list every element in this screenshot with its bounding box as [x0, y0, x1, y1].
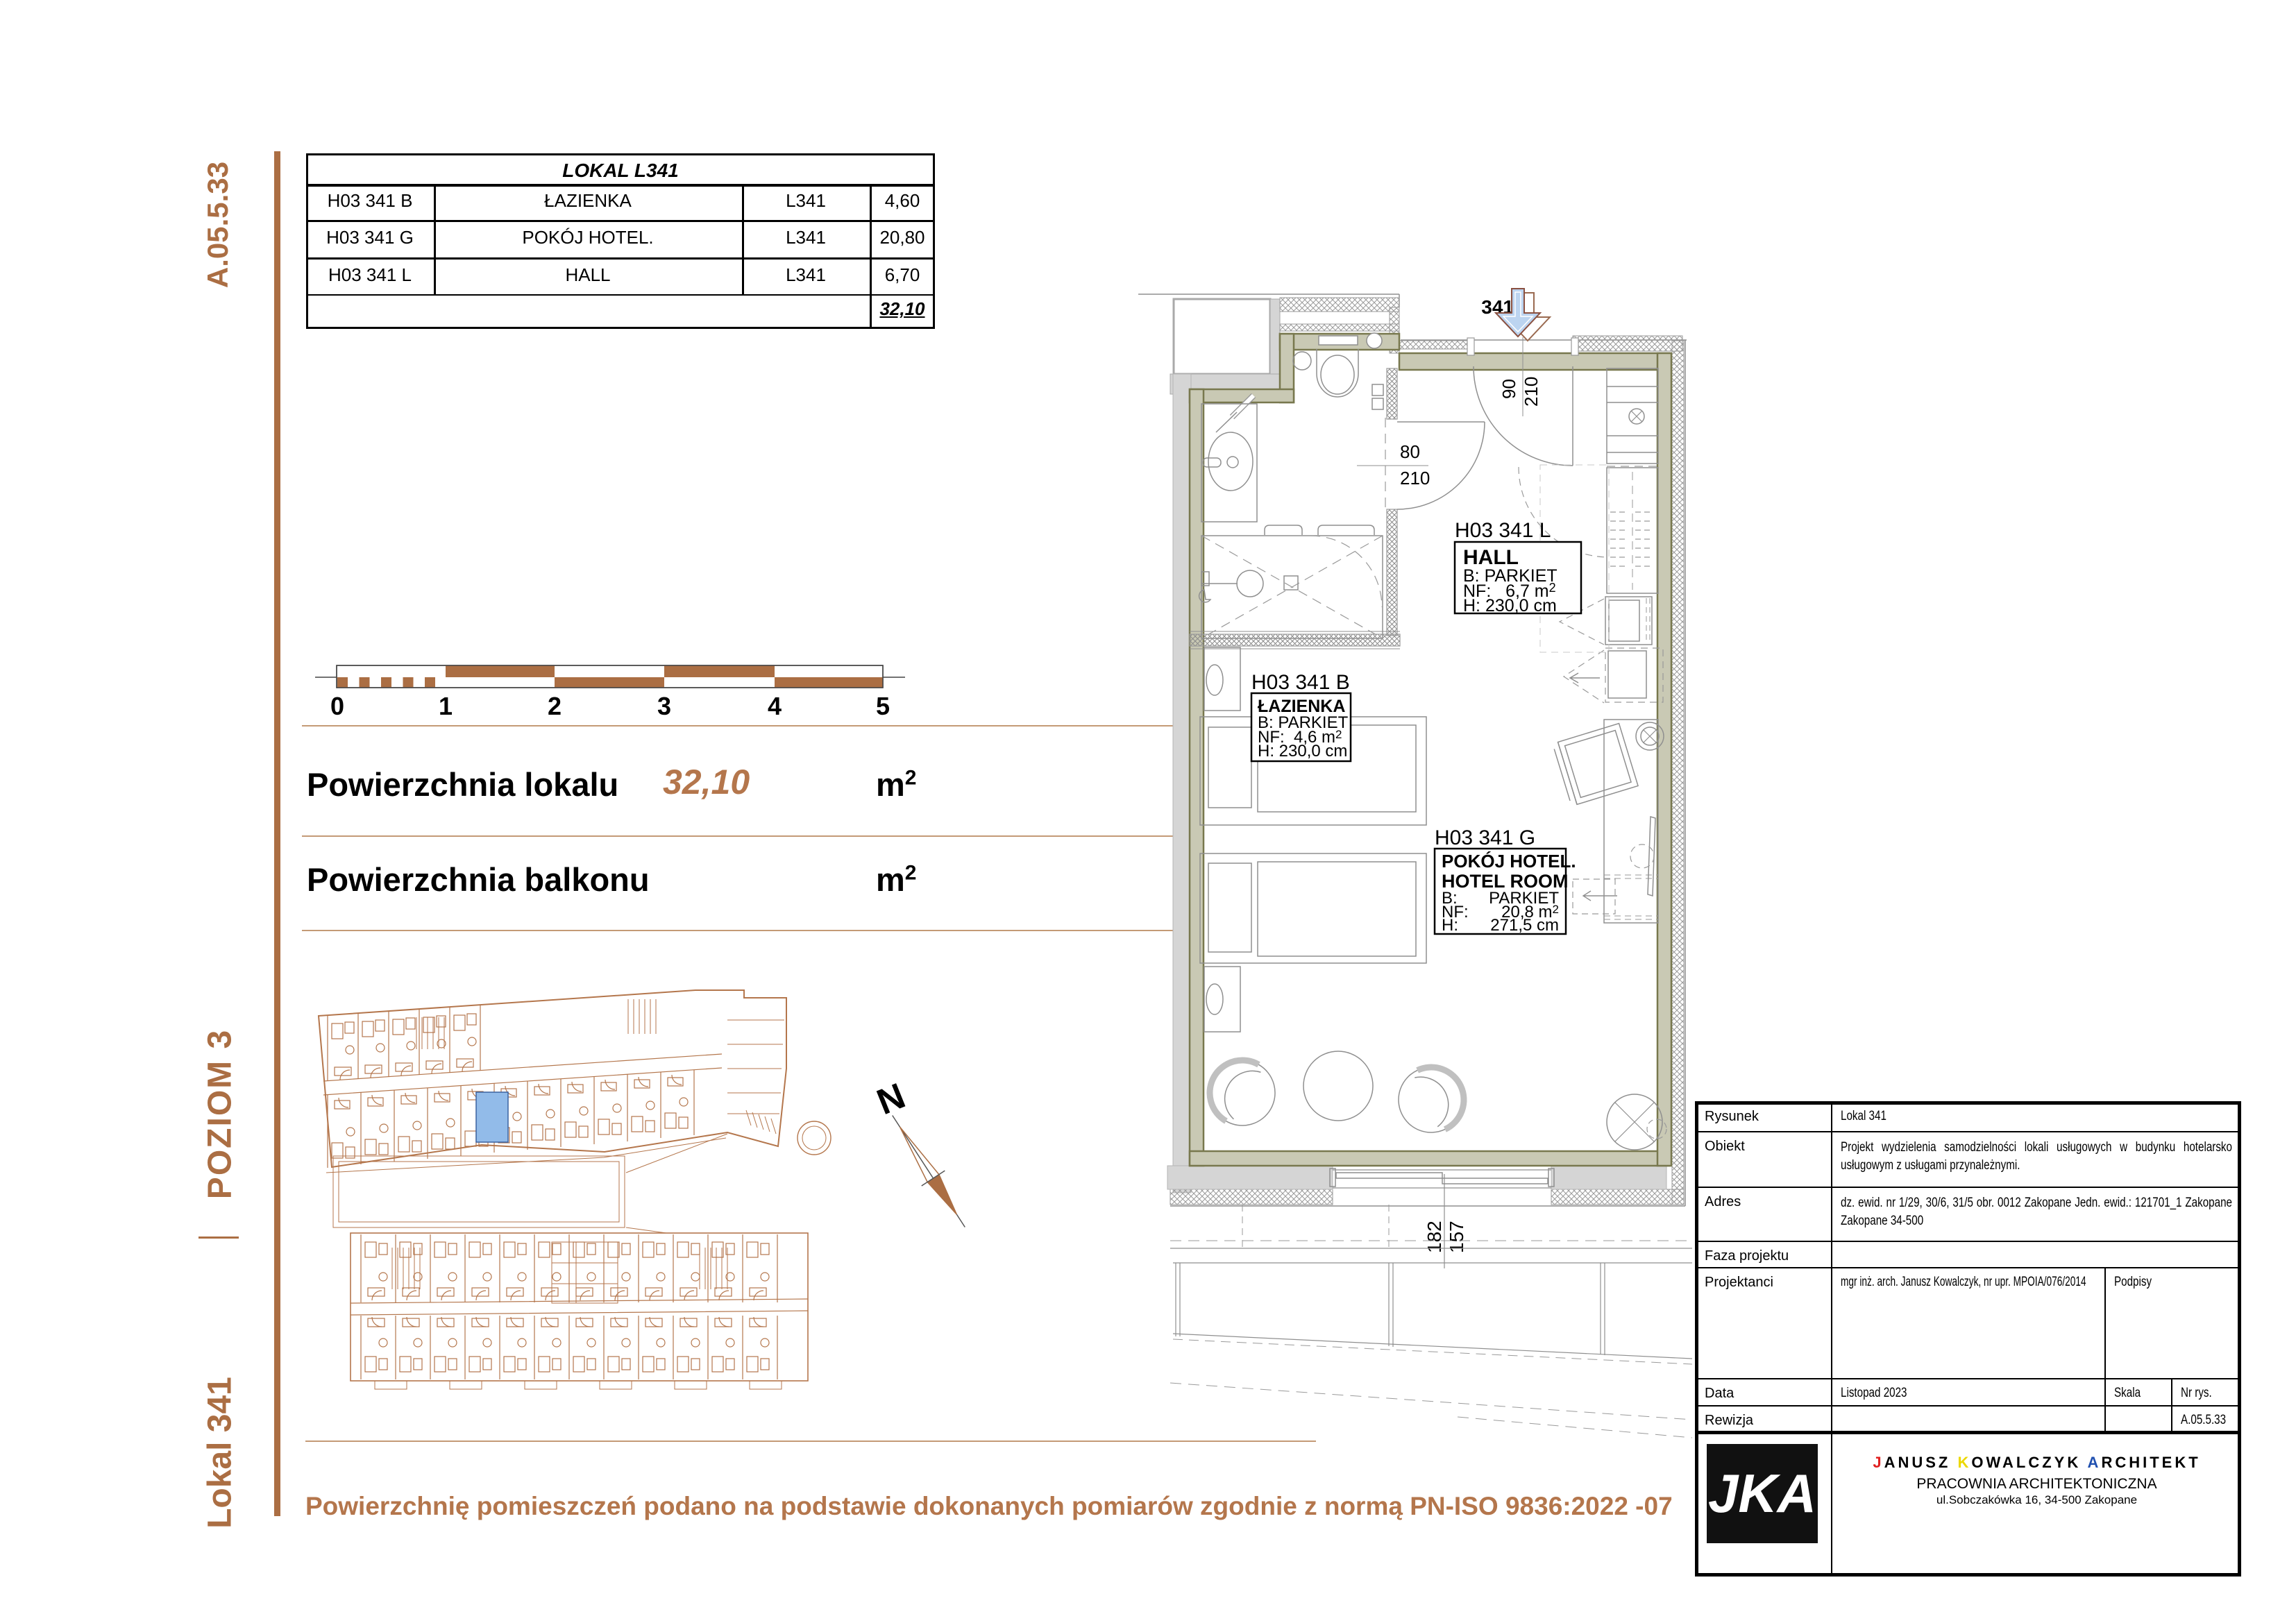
svg-text:4: 4 — [768, 692, 782, 720]
svg-text:H: 230,0 cm: H: 230,0 cm — [1463, 596, 1557, 615]
svg-text:90: 90 — [1499, 379, 1519, 399]
svg-text:1: 1 — [439, 692, 453, 720]
svg-text:210: 210 — [1400, 468, 1430, 488]
svg-text:5: 5 — [876, 692, 890, 720]
svg-text:271,5 cm: 271,5 cm — [1490, 916, 1559, 935]
svg-text:3: 3 — [657, 692, 671, 720]
svg-text:H03 341 L: H03 341 L — [1455, 519, 1551, 542]
svg-text:0: 0 — [330, 692, 344, 720]
svg-text:2: 2 — [548, 692, 562, 720]
svg-text:H03 341 G: H03 341 G — [1435, 826, 1535, 849]
svg-text:H03 341 B: H03 341 B — [1251, 671, 1350, 694]
svg-text:H:: H: — [1442, 916, 1458, 935]
svg-text:N: N — [872, 1076, 911, 1123]
svg-text:H: 230,0 cm: H: 230,0 cm — [1258, 742, 1347, 760]
svg-text:210: 210 — [1521, 377, 1542, 407]
svg-text:POKÓJ HOTEL.: POKÓJ HOTEL. — [1442, 851, 1576, 872]
svg-text:80: 80 — [1400, 441, 1420, 462]
